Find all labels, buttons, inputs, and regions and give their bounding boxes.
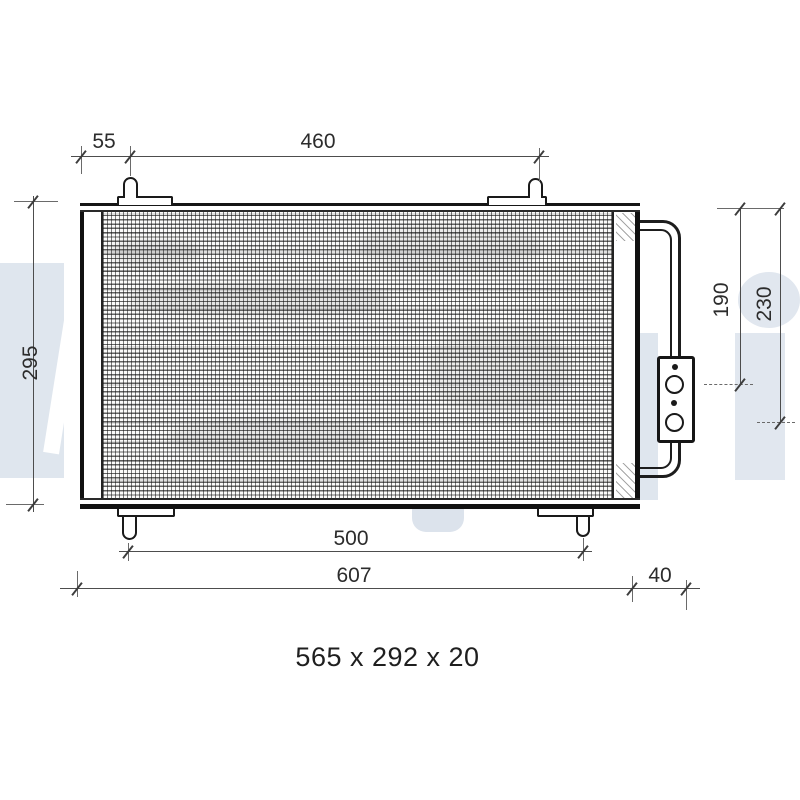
extension-line-top-pin1	[130, 146, 131, 176]
condenser-core-mesh	[103, 210, 612, 500]
mounting-bracket-plate-bottom-left	[117, 509, 175, 517]
condenser-bottom-header	[80, 498, 640, 509]
mesh-shading	[360, 225, 540, 270]
extension-line-right-top	[717, 208, 784, 209]
dimension-line-bottom-total	[60, 588, 700, 589]
dim-label-right-upper: 190	[710, 272, 734, 328]
dimension-line-bottom-span	[119, 551, 592, 552]
dimension-line-right-upper	[740, 208, 741, 384]
dimension-line-top	[71, 156, 549, 157]
extension-line-bottom-left-edge	[77, 571, 78, 597]
mounting-pin-top-left	[123, 177, 138, 198]
dim-label-right-lower: 230	[753, 276, 777, 332]
condenser-left-tank	[80, 203, 103, 509]
mounting-bracket-plate-bottom-right	[537, 509, 594, 517]
dim-label-left-height: 295	[19, 333, 43, 393]
side-plate-hatching	[616, 213, 635, 241]
bracket-rivet-upper	[672, 364, 678, 370]
bracket-rivet-lower	[671, 400, 677, 406]
side-plate-hatching	[616, 463, 635, 499]
watermark-fragment-i-stem	[735, 333, 785, 480]
mounting-pin-top-right	[528, 178, 543, 198]
extension-line-upper-hole	[704, 384, 753, 385]
overall-dimensions-caption: 565 x 292 x 20	[240, 642, 535, 673]
mounting-pin-bottom-right	[576, 517, 590, 537]
mesh-shading	[110, 240, 200, 265]
mesh-shading	[170, 420, 370, 455]
mounting-pin-bottom-left	[122, 517, 137, 540]
dim-label-bottom-right-offset: 40	[633, 564, 687, 588]
condenser-dimension-drawing: 55 460 295 190 230 500 607 40 565 x 292 …	[0, 0, 800, 800]
extension-line-lower-hole	[757, 422, 795, 423]
dim-label-bottom-total: 607	[324, 564, 384, 588]
bracket-hole-upper	[665, 375, 684, 394]
extension-line-left-bottom	[6, 504, 44, 505]
dim-label-bottom-span: 500	[321, 527, 381, 551]
dim-label-top-offset: 55	[79, 130, 129, 154]
dim-label-top-span: 460	[283, 130, 353, 154]
bracket-hole-lower	[665, 413, 684, 432]
extension-line-left-top	[14, 201, 58, 202]
condenser-right-side-plate	[612, 203, 640, 509]
mesh-shading	[130, 285, 390, 315]
dimension-line-right-lower	[780, 208, 781, 422]
mesh-shading	[430, 330, 570, 410]
